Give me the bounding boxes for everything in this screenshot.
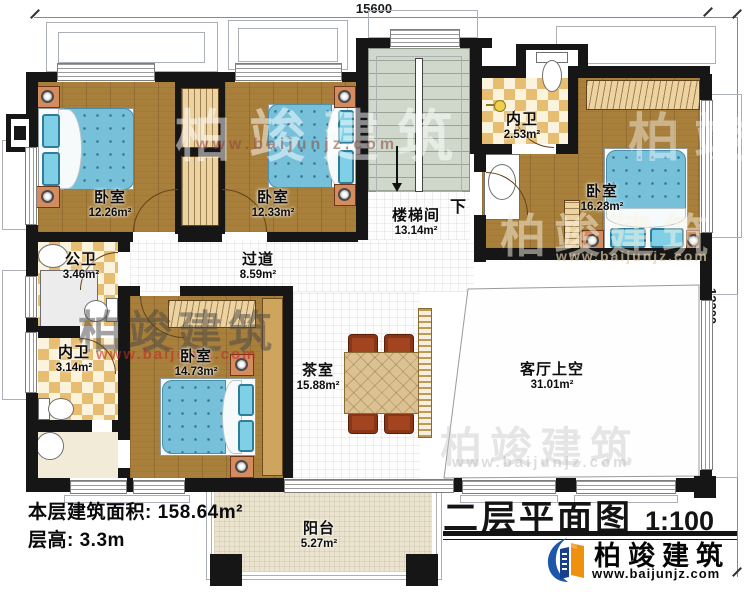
room-name: 过道 — [210, 252, 306, 269]
room-area: 12.33m² — [225, 207, 321, 220]
dimension-tick — [703, 7, 713, 17]
room-name: 阳台 — [271, 521, 367, 538]
wall-segment — [175, 226, 225, 234]
wall-segment — [267, 232, 358, 242]
lamp — [41, 90, 54, 103]
lamp — [41, 190, 54, 203]
pillow — [610, 228, 646, 248]
wall-segment — [700, 74, 712, 100]
room-name: 卧室 — [554, 184, 650, 201]
pillow — [338, 110, 354, 144]
stairs-down-label: 下 — [450, 193, 466, 217]
wardrobe — [181, 156, 219, 226]
floor-height-text: 层高: 3.3m — [28, 525, 125, 552]
room-name: 卧室 — [62, 190, 158, 207]
chair — [348, 412, 378, 434]
wall-segment — [185, 478, 284, 492]
chair — [384, 412, 414, 434]
wall-segment — [474, 154, 486, 172]
window — [235, 63, 342, 81]
bed-blanket — [268, 104, 332, 188]
toilet-bowl — [84, 300, 108, 322]
window — [70, 480, 127, 494]
room-name: 卧室 — [225, 190, 321, 207]
balcony-column — [406, 554, 438, 586]
window — [25, 276, 37, 318]
window — [133, 480, 185, 494]
room-label-tea-room: 茶室 15.88m² — [270, 363, 366, 392]
wall-segment — [700, 233, 712, 300]
window — [701, 300, 713, 470]
room-area: 12.26m² — [62, 207, 158, 220]
room-label-balcony: 阳台 5.27m² — [271, 521, 367, 550]
room-area: 16.28m² — [554, 201, 650, 214]
window — [390, 29, 460, 47]
wall-segment — [474, 248, 702, 260]
wall-segment — [356, 38, 368, 240]
wall-segment — [155, 72, 235, 82]
wall-hook-stem — [486, 104, 494, 106]
wall-segment — [26, 318, 38, 332]
wall-segment — [118, 468, 130, 478]
stair-direction-arrow — [392, 183, 402, 192]
lamp — [687, 234, 700, 247]
window — [701, 100, 713, 233]
wardrobe — [181, 88, 219, 148]
room-label-public-bath: 公卫 3.46m² — [33, 252, 129, 281]
wall-segment — [516, 44, 588, 50]
room-name: 客厅上空 — [504, 362, 600, 379]
room-area: 3.14m² — [26, 362, 122, 375]
bed-blanket — [162, 380, 226, 454]
room-area: 5.27m² — [271, 538, 367, 551]
toilet-bowl — [542, 60, 562, 92]
window-bay-outline — [238, 28, 338, 62]
room-area: 2.53m² — [474, 129, 570, 142]
room-area: 15.88m² — [270, 380, 366, 393]
stair-handrail — [415, 58, 423, 192]
window — [25, 147, 37, 225]
room-label-corridor: 过道 8.59m² — [210, 252, 306, 281]
room-label-bedroom-3: 卧室 16.28m² — [554, 184, 650, 213]
room-label-bedroom-4: 卧室 14.73m² — [148, 349, 244, 378]
wall-segment — [118, 240, 130, 252]
room-name: 卧室 — [148, 349, 244, 366]
toilet-bowl — [48, 398, 74, 420]
window — [57, 63, 155, 81]
flue-box-inner — [14, 126, 26, 140]
wall-segment — [175, 148, 225, 156]
room-label-bedroom-1: 卧室 12.26m² — [62, 190, 158, 219]
wall-segment — [38, 420, 92, 432]
stair-direction-line — [396, 146, 398, 184]
window-bay-outline — [58, 32, 205, 63]
void-railing — [418, 308, 432, 438]
wall-segment — [585, 66, 710, 78]
wall-segment — [26, 478, 70, 492]
room-name: 内卫 — [474, 112, 570, 129]
room-area: 3.46m² — [33, 269, 129, 282]
room-name: 茶室 — [270, 363, 366, 380]
balcony-column — [210, 554, 242, 586]
brand-logo-icon — [544, 537, 590, 583]
room-area: 8.59m² — [210, 269, 306, 282]
room-area: 13.14m² — [368, 225, 464, 238]
wall-segment — [118, 286, 140, 296]
wardrobe — [586, 80, 700, 110]
wall-segment — [175, 82, 225, 88]
room-area: 14.73m² — [148, 366, 244, 379]
wall-segment — [38, 326, 80, 338]
pillow — [42, 114, 60, 148]
lamp — [338, 90, 351, 103]
lamp — [235, 460, 248, 473]
room-label-living-void: 客厅上空 31.01m² — [504, 362, 600, 391]
room-area: 31.01m² — [504, 379, 600, 392]
lamp — [338, 188, 351, 201]
pillow — [238, 420, 254, 452]
pillow — [650, 228, 684, 248]
brand-url: www.baijunjz.com — [592, 566, 720, 581]
floor-area-text: 本层建筑面积: 158.64m² — [28, 497, 243, 524]
wall-segment — [112, 420, 130, 432]
pillow — [238, 384, 254, 416]
wall-segment — [482, 144, 512, 154]
lamp — [586, 234, 599, 247]
wall-hook — [494, 100, 506, 112]
room-name: 内卫 — [26, 345, 122, 362]
floor-plan-canvas: 15600 12200 — [0, 0, 750, 597]
room-label-ensuite-bath-1: 内卫 2.53m² — [474, 112, 570, 141]
utility-basin — [36, 432, 64, 460]
wall-segment — [180, 286, 293, 296]
room-label-bedroom-2: 卧室 12.33m² — [225, 190, 321, 219]
balcony-door-window — [284, 479, 454, 493]
room-name: 公卫 — [33, 252, 129, 269]
pillow — [338, 150, 354, 184]
pillow — [42, 152, 60, 186]
room-label-ensuite-bath-2: 内卫 3.14m² — [26, 345, 122, 374]
wall-segment — [26, 393, 38, 478]
